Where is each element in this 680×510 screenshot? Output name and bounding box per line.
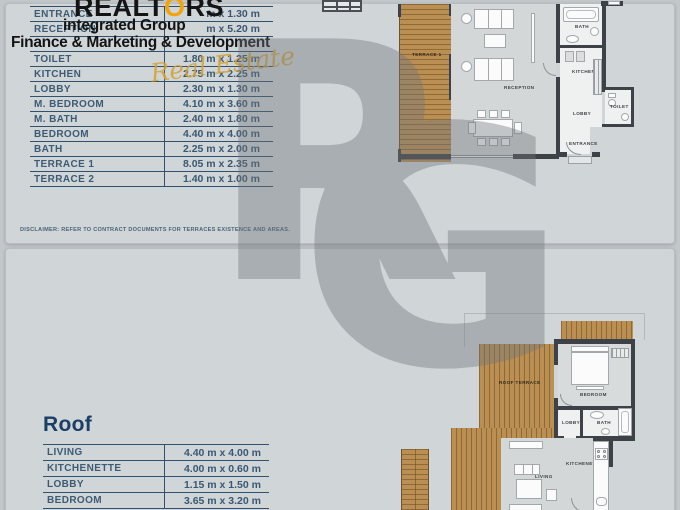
sofa [474, 58, 514, 81]
dining-chair [477, 110, 486, 118]
terrace-1-label: TERRACE 1 [412, 52, 442, 57]
kitchen-label: KITCHEN [572, 69, 595, 74]
table-row: BEDROOM4.40 m x 4.00 m [30, 127, 273, 142]
living-table [516, 479, 542, 499]
lobby-label: LOBBY [573, 111, 591, 116]
roof-terrace-deck [451, 428, 501, 510]
room-label: M. BATH [30, 114, 164, 125]
room-label: LIVING [43, 447, 164, 458]
sofa [474, 9, 514, 29]
room-dimension: 2.30 m x 1.30 m [164, 83, 273, 95]
roof-floorplan: ROOF TERRACE BEDROOM LOBBY BATH [381, 301, 676, 510]
room-label: TERRACE 1 [30, 159, 164, 170]
dining-chair [489, 138, 498, 146]
room-dimension: 3.65 m x 3.20 m [164, 495, 269, 507]
washbasin [590, 27, 599, 36]
side-table [461, 13, 472, 24]
room-dimension: 2.40 m x 1.80 m [164, 113, 273, 125]
table-row: BEDROOM3.65 m x 3.20 m [43, 493, 269, 509]
toilet-label: TOILET [610, 104, 629, 109]
room-dimension: 2.25 m x 2.00 m [164, 143, 273, 155]
roof-section-heading: Roof [43, 413, 92, 437]
roof-terrace-label: ROOF TERRACE [499, 380, 541, 385]
bath-label: BATH [575, 24, 589, 29]
roof-terrace-deck [479, 344, 554, 438]
kitchen-counter [593, 59, 602, 95]
table-row: TERRACE 18.05 m x 2.35 m [30, 157, 273, 172]
stove [565, 51, 574, 62]
window [451, 155, 513, 158]
logo-subtitle: integrated Group [63, 17, 186, 35]
bed-bench [576, 386, 604, 390]
room-dimension: 4.40 m x 4.00 m [164, 447, 269, 459]
table-row: LOBBY1.15 m x 1.50 m [43, 477, 269, 493]
sofa [509, 504, 542, 510]
reception-label: RECEPTION [504, 85, 534, 90]
table-row: KITCHENETTE4.00 m x 0.60 m [43, 461, 269, 477]
terrace-1-deck [399, 4, 451, 162]
wardrobe [611, 348, 629, 358]
washbasin [590, 411, 604, 419]
room-label: TERRACE 2 [30, 174, 164, 185]
bathtub [618, 408, 632, 436]
dining-chair [468, 122, 476, 134]
table-row: M. BEDROOM4.10 m x 3.60 m [30, 97, 273, 112]
washbasin [621, 113, 629, 121]
dining-chair [514, 122, 522, 134]
room-label: BEDROOM [30, 129, 164, 140]
bottom-panel: Roof LIVING4.40 m x 4.00 m KITCHENETTE4.… [5, 248, 675, 510]
room-dimension: 4.00 m x 0.60 m [164, 463, 269, 475]
room-label: BEDROOM [43, 495, 164, 506]
apartment-floorplan: TERRACE 1 RECEPTION [386, 1, 676, 169]
room-label: KITCHEN [30, 69, 164, 80]
room-dimension: 4.10 m x 3.60 m [164, 98, 273, 110]
stove [595, 448, 608, 460]
room-label: LOBBY [30, 84, 164, 95]
bedroom-label: BEDROOM [580, 392, 607, 397]
room-label: M. BEDROOM [30, 99, 164, 110]
room-dimension: 1.40 m x 1.00 m [164, 173, 273, 185]
entrance-step [568, 156, 592, 164]
table-row: M. BATH2.40 m x 1.80 m [30, 112, 273, 127]
tv-console [531, 13, 535, 63]
roof-deck-strip [561, 321, 633, 339]
cutoff-fixture [608, 1, 620, 5]
table-row: TERRACE 21.40 m x 1.00 m [30, 172, 273, 187]
logo-tagline: Finance & Marketing & Development [11, 34, 270, 52]
roof-lobby-label: LOBBY [562, 420, 580, 425]
armchair [546, 489, 557, 501]
coffee-table [484, 34, 506, 48]
sofa [509, 441, 543, 449]
room-label: KITCHENETTE [43, 463, 164, 474]
roof-bath-label: BATH [597, 420, 611, 425]
logo-text: RS [186, 0, 225, 22]
dining-chair [477, 138, 486, 146]
room-dimension: 1.15 m x 1.50 m [164, 479, 269, 491]
room-dimension: 4.40 m x 4.00 m [164, 128, 273, 140]
toilet-fixture [601, 428, 610, 435]
dining-table [473, 119, 513, 137]
floorplan-sheet: ENTRANCEm x 1.30 m RECEPTIONm x 5.20 m T… [0, 0, 680, 510]
room-label: BATH [30, 144, 164, 155]
stove [576, 51, 585, 62]
table-row: LIVING4.40 m x 4.00 m [43, 445, 269, 461]
toilet-fixture [608, 93, 616, 98]
dining-chair [501, 110, 510, 118]
bed [571, 352, 609, 385]
disclaimer-text: DISCLAIMER: REFER TO CONTRACT DOCUMENTS … [20, 227, 290, 233]
cutoff-furniture-icon [322, 0, 362, 12]
pergola-strip [401, 449, 429, 510]
roof-dimensions-table: LIVING4.40 m x 4.00 m KITCHENETTE4.00 m … [43, 444, 269, 509]
room-label: LOBBY [43, 479, 164, 490]
dining-chair [489, 110, 498, 118]
kitchen-sink [596, 497, 607, 506]
washbasin [566, 35, 579, 43]
side-table [461, 61, 472, 72]
table-row: BATH2.25 m x 2.00 m [30, 142, 273, 157]
dining-chair [501, 138, 510, 146]
bathtub [563, 7, 599, 22]
room-dimension: 8.05 m x 2.35 m [164, 158, 273, 170]
room-label: TOILET [30, 54, 164, 65]
